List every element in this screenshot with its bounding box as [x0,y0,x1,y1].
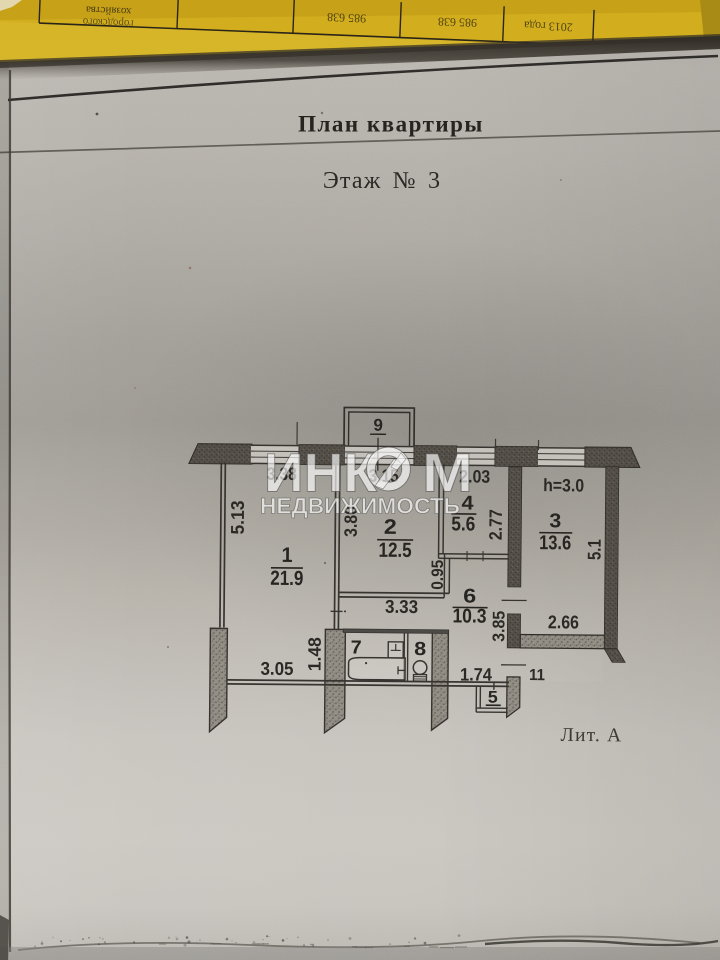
svg-text:985 638: 985 638 [327,10,367,26]
svg-text:985 638: 985 638 [438,15,478,31]
svg-text:хозяйства: хозяйства [86,3,132,17]
svg-text:городского: городского [82,15,134,29]
svg-text:2013 года: 2013 года [523,19,573,35]
